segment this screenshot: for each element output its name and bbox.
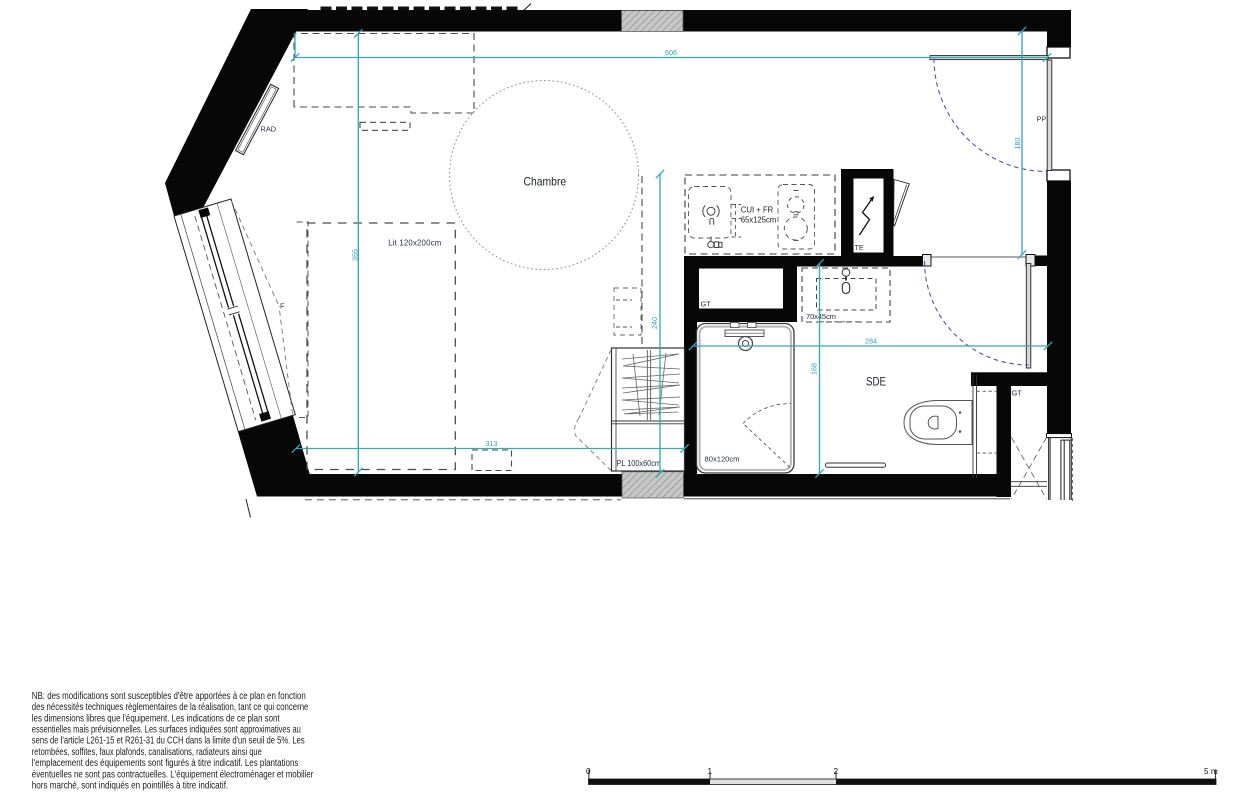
svg-text:240: 240 (650, 317, 659, 329)
svg-text:GT: GT (701, 300, 712, 309)
svg-text:hors marché, sont indiqués en: hors marché, sont indiqués en pointillés… (32, 781, 228, 792)
svg-text:les dimensions libres que l'éq: les dimensions libres que l'équipement. … (32, 713, 280, 724)
svg-text:PL 100x60cm: PL 100x60cm (617, 458, 662, 468)
svg-text:GT: GT (1012, 389, 1023, 398)
svg-text:PP: PP (1037, 115, 1047, 124)
svg-text:NB: des modifications sont sus: NB: des modifications sont susceptibles … (32, 691, 306, 702)
svg-text:168: 168 (810, 363, 819, 375)
svg-text:SDE: SDE (866, 375, 886, 389)
svg-text:CUI + FR: CUI + FR (741, 205, 774, 214)
svg-text:606: 606 (665, 48, 677, 57)
svg-text:TE: TE (855, 243, 864, 252)
svg-text:180: 180 (1013, 138, 1022, 150)
svg-text:0: 0 (586, 767, 591, 776)
svg-text:70x45cm: 70x45cm (806, 312, 836, 321)
svg-text:Chambre: Chambre (524, 174, 567, 188)
svg-text:313: 313 (486, 439, 498, 448)
svg-text:RAD: RAD (261, 125, 277, 134)
svg-text:éventuelles ne sont pas contra: éventuelles ne sont pas contractuelles. … (32, 769, 314, 780)
svg-text:sens de l'article L261-15 et R: sens de l'article L261-15 et R261-31 du … (32, 736, 305, 747)
svg-text:retombées, soffites, faux plaf: retombées, soffites, faux plafonds, cana… (32, 747, 262, 758)
svg-text:essentielles mais prévisionnel: essentielles mais prévisionnelles. Les s… (32, 725, 301, 736)
svg-text:1: 1 (708, 767, 713, 776)
svg-text:5 m: 5 m (1204, 767, 1218, 776)
svg-text:des nécessités techniques règl: des nécessités techniques règlementaires… (32, 702, 309, 713)
svg-text:80x120cm: 80x120cm (705, 455, 740, 464)
svg-text:F: F (280, 302, 285, 311)
svg-text:Lit 120x200cm: Lit 120x200cm (388, 239, 441, 248)
svg-text:355: 355 (351, 249, 360, 261)
svg-text:2: 2 (834, 767, 839, 776)
svg-text:l'emplacement des équipements: l'emplacement des équipements sont figur… (32, 758, 299, 769)
svg-text:65x125cm: 65x125cm (741, 215, 776, 224)
svg-text:284: 284 (865, 337, 877, 346)
